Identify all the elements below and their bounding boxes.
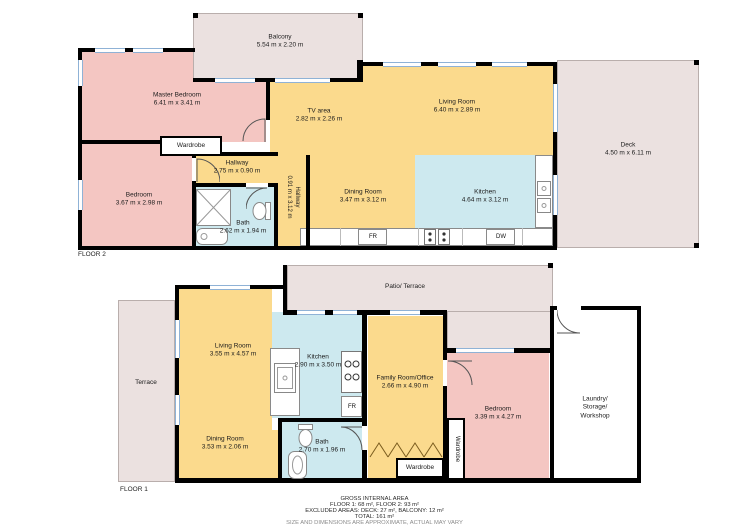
post bbox=[358, 13, 363, 18]
wall bbox=[82, 140, 162, 144]
label-f2-tv-area: TV area2.82 m x 2.26 m bbox=[296, 108, 343, 125]
label-f1-dining-room: Dining Room3.53 m x 2.06 m bbox=[202, 436, 249, 453]
window bbox=[210, 285, 250, 290]
window bbox=[175, 395, 180, 425]
sink-icon bbox=[274, 363, 296, 393]
window bbox=[275, 78, 330, 83]
area-summary: GROSS INTERNAL AREA FLOOR 1: 68 m², FLOO… bbox=[0, 497, 749, 527]
wall bbox=[274, 183, 278, 246]
label-f2-balcony: Balcony5.54 m x 2.20 m bbox=[257, 34, 304, 51]
room-f1-patio-extension bbox=[447, 311, 553, 352]
window bbox=[133, 48, 163, 53]
bifold-door-icon bbox=[369, 442, 443, 458]
window bbox=[553, 84, 558, 132]
window bbox=[78, 60, 83, 86]
counter-divider bbox=[418, 228, 419, 246]
door-arc bbox=[447, 360, 473, 386]
label-f1-wardrobe-bedroom: Wardrobe bbox=[452, 436, 460, 462]
wall bbox=[283, 265, 287, 314]
wall bbox=[278, 422, 282, 480]
disclaimer: SIZE AND DIMENSIONS ARE APPROXIMATE, ACT… bbox=[0, 521, 749, 527]
window bbox=[553, 175, 558, 215]
label-f1-kitchen: Kitchen2.90 m x 3.50 m bbox=[295, 354, 342, 371]
room-f1-living-room bbox=[179, 289, 272, 430]
label-f2-fridge: FR bbox=[369, 234, 377, 240]
window bbox=[438, 62, 476, 67]
label-f1-patio: Patio/ Terrace bbox=[385, 283, 425, 291]
counter-divider bbox=[340, 228, 341, 246]
post bbox=[193, 13, 198, 18]
wall bbox=[362, 314, 367, 480]
label-f1-bedroom: Bedroom3.39 m x 4.27 m bbox=[475, 406, 522, 423]
window bbox=[492, 62, 527, 67]
window bbox=[215, 78, 255, 83]
wall bbox=[222, 152, 278, 156]
post bbox=[694, 60, 699, 65]
label-f1-fridge: FR bbox=[348, 404, 356, 410]
floor1-label: FLOOR 1 bbox=[120, 486, 148, 493]
counter-divider bbox=[522, 228, 523, 246]
label-f2-dishwasher: DW bbox=[496, 234, 506, 240]
window bbox=[78, 180, 83, 210]
label-f2-dining-room: Dining Room3.47 m x 3.12 m bbox=[340, 189, 387, 206]
label-f1-living-room: Living Room3.55 m x 4.57 m bbox=[210, 343, 257, 360]
post bbox=[548, 263, 553, 268]
counter-divider bbox=[462, 228, 463, 246]
wall bbox=[175, 285, 179, 483]
window bbox=[333, 310, 357, 315]
label-f1-bath: Bath2.70 m x 1.96 m bbox=[299, 439, 346, 456]
wall bbox=[78, 246, 557, 250]
wall bbox=[637, 306, 641, 483]
wall bbox=[278, 418, 367, 422]
window bbox=[383, 62, 421, 67]
label-f2-wardrobe: Wardrobe bbox=[177, 142, 205, 150]
label-f2-deck: Deck4.50 m x 6.11 m bbox=[605, 142, 651, 159]
label-f2-master-bedroom: Master Bedroom6.41 m x 3.41 m bbox=[153, 92, 201, 109]
post bbox=[694, 243, 699, 248]
label-f2-hallway-vertical: Hallway0.91 m x 3.12 m bbox=[284, 175, 300, 218]
window bbox=[456, 348, 514, 353]
wall bbox=[306, 155, 310, 246]
door-arc bbox=[242, 118, 266, 142]
label-f1-family-room: Family Room/Office2.66 m x 4.90 m bbox=[377, 375, 434, 392]
label-f1-wardrobe-hall: Wardrobe bbox=[406, 464, 434, 472]
wall bbox=[550, 306, 554, 483]
label-f2-bedroom: Bedroom3.67 m x 2.98 m bbox=[116, 192, 163, 209]
label-f2-hallway: Hallway2.75 m x 0.90 m bbox=[214, 160, 261, 177]
label-f1-terrace: Terrace bbox=[135, 379, 157, 387]
wall bbox=[175, 478, 641, 483]
window bbox=[175, 320, 180, 358]
room-f1-terrace bbox=[118, 300, 175, 482]
door-gap bbox=[266, 120, 270, 142]
window bbox=[95, 48, 125, 53]
window bbox=[297, 310, 325, 315]
stove-icon bbox=[341, 351, 362, 393]
label-f2-bath: Bath2.62 m x 1.94 m bbox=[220, 220, 267, 237]
stove-icon bbox=[424, 229, 451, 245]
post bbox=[357, 60, 363, 79]
window bbox=[390, 310, 420, 315]
label-f2-living-room: Living Room6.40 m x 2.89 m bbox=[434, 99, 481, 116]
sink-icon bbox=[537, 181, 551, 213]
label-f2-kitchen: Kitchen4.64 m x 3.12 m bbox=[462, 189, 509, 206]
floor-plan-canvas: Balcony5.54 m x 2.20 m Master Bedroom6.4… bbox=[0, 0, 749, 529]
floor2-label: FLOOR 2 bbox=[78, 251, 106, 258]
door-arc bbox=[557, 310, 581, 334]
label-f1-laundry: Laundry/Storage/Workshop bbox=[580, 395, 609, 420]
